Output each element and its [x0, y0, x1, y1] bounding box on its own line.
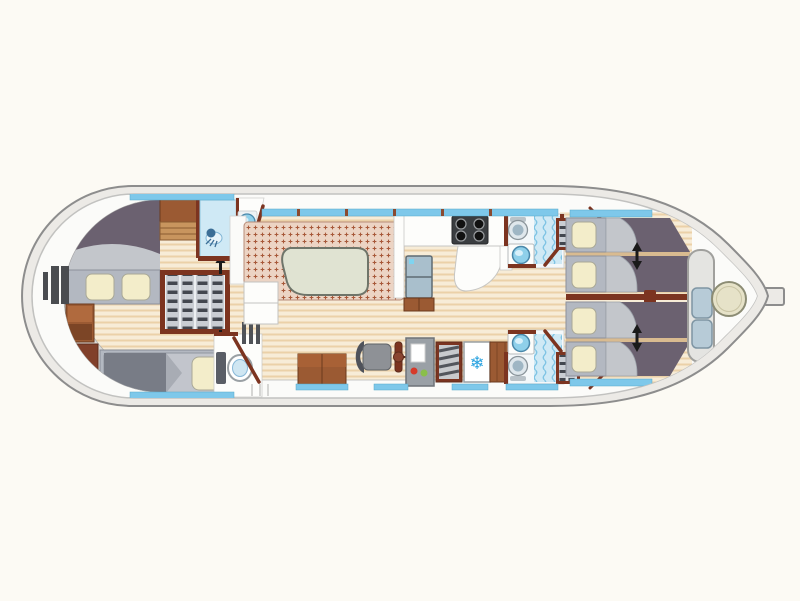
toilet-seat [513, 361, 524, 372]
window-bow-bottom [570, 379, 652, 386]
berth-3 [566, 302, 690, 338]
shower-wall [196, 198, 200, 258]
window-helm-bottom [374, 384, 408, 390]
toilet-cistern [510, 376, 526, 381]
deck-step [242, 322, 246, 344]
window-galley-bottom [452, 384, 488, 390]
day-toilet-room [214, 332, 262, 397]
pillow [572, 346, 596, 372]
berth-4 [566, 342, 690, 376]
deck-step [256, 322, 260, 344]
pillow [572, 262, 596, 288]
basin-highlight [515, 250, 523, 256]
snowflake-icon: ❄ [469, 353, 484, 374]
bow-berths [566, 218, 690, 376]
bow-table [712, 282, 746, 316]
basin-highlight [515, 338, 523, 344]
window-bathroom-bottom [506, 384, 558, 390]
day-toilet-wall [214, 332, 238, 336]
panel-screen [411, 344, 425, 362]
stern-gate-left [51, 266, 59, 304]
toilet-cistern [216, 352, 226, 384]
bench-cushion [692, 320, 712, 348]
bathroom-bottom [504, 330, 564, 384]
window-aft-top [130, 193, 234, 200]
stern-gate-right [61, 266, 69, 304]
helm-seat [363, 344, 391, 370]
window-salon-bottom [296, 384, 348, 390]
wardrobe-shelves [165, 275, 225, 329]
aft-cabinet-tambour [160, 222, 198, 240]
galley-wall [394, 214, 404, 298]
wheel-hub [394, 352, 404, 362]
bathroom-wall-left [504, 352, 508, 384]
toilet-seat [513, 225, 524, 236]
deck-step [249, 322, 253, 344]
bathroom-wall-bottom [508, 264, 536, 268]
houseboat-floorplan: ❄ [0, 0, 800, 601]
pillow [572, 308, 596, 334]
bathroom-wall-left [504, 214, 508, 246]
pillow [86, 274, 114, 300]
slide-arrow-up [219, 262, 222, 274]
bathroom-top [504, 214, 564, 268]
floorplan-canvas: ❄ [0, 0, 800, 601]
aft-cabinet [160, 198, 198, 222]
window-aft-bottom [130, 392, 234, 399]
fridge-handle [409, 259, 414, 264]
indicator-red [411, 368, 418, 375]
bench-cushion [692, 288, 712, 318]
center-bulkhead [566, 294, 690, 300]
indicator-green [421, 370, 428, 377]
pillow [122, 274, 150, 300]
pillow [572, 222, 596, 248]
berth-1 [566, 218, 690, 252]
berth-2 [566, 256, 690, 292]
berth-gap [566, 338, 690, 342]
berth-gap [566, 252, 690, 256]
bulkhead-cap [644, 290, 656, 304]
interior: ❄ [64, 193, 772, 399]
bathroom-wall-top [508, 330, 536, 334]
ladder-rail [43, 272, 48, 300]
aft-step-tread [68, 306, 92, 322]
salon-table [282, 248, 368, 295]
window-salon-top [262, 209, 558, 216]
window-bow-top [570, 210, 652, 217]
shower-head-icon [207, 229, 216, 238]
toilet-seat [233, 360, 248, 377]
